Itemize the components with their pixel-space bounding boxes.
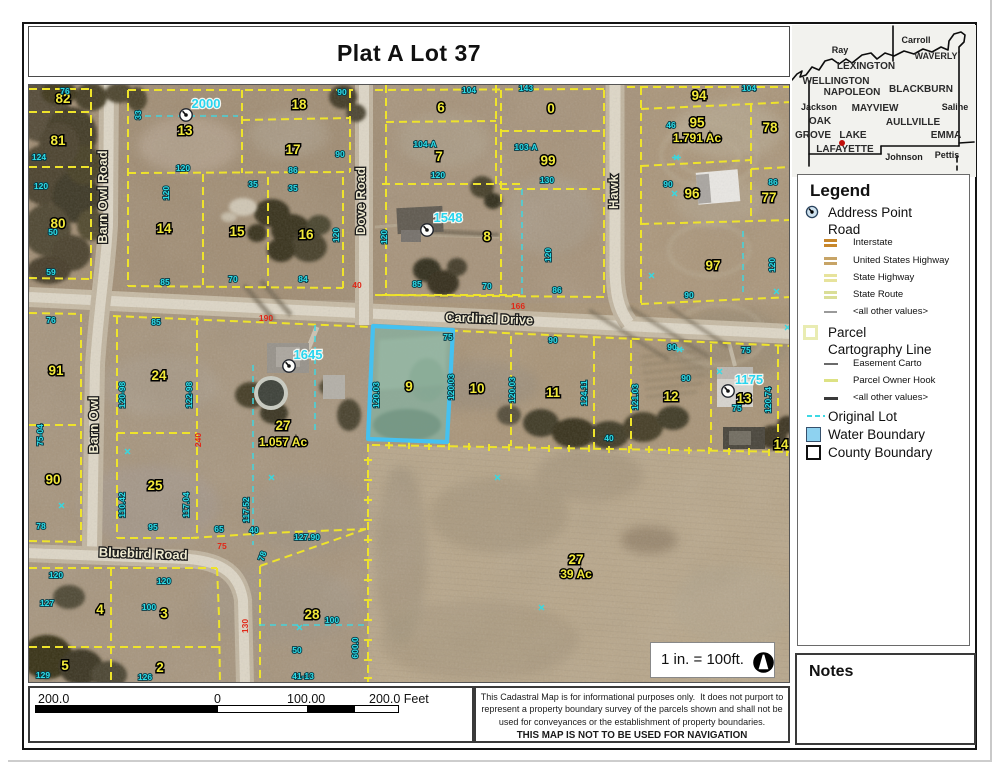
svg-text:40: 40 bbox=[352, 280, 362, 290]
svg-text:Saline: Saline bbox=[942, 102, 969, 112]
svg-text:127: 127 bbox=[40, 598, 54, 608]
svg-text:70: 70 bbox=[482, 281, 492, 291]
svg-text:95: 95 bbox=[689, 115, 705, 130]
svg-text:129: 129 bbox=[36, 670, 50, 680]
svg-text:90: 90 bbox=[335, 149, 345, 159]
svg-text:99: 99 bbox=[540, 153, 555, 168]
svg-text:120: 120 bbox=[379, 230, 389, 244]
svg-text:190: 190 bbox=[259, 313, 273, 323]
svg-text:40: 40 bbox=[249, 525, 259, 535]
svg-text:127.90: 127.90 bbox=[294, 532, 320, 542]
svg-text:76: 76 bbox=[46, 315, 56, 325]
svg-text:Barn Owl Road: Barn Owl Road bbox=[95, 150, 110, 243]
svg-text:1645: 1645 bbox=[294, 347, 323, 362]
svg-text:50: 50 bbox=[48, 227, 58, 237]
svg-text:16: 16 bbox=[298, 227, 314, 242]
svg-text:10: 10 bbox=[469, 381, 484, 396]
svg-text:12: 12 bbox=[663, 389, 678, 404]
svg-text:27: 27 bbox=[275, 418, 290, 433]
svg-text:130: 130 bbox=[540, 175, 554, 185]
svg-text:4: 4 bbox=[96, 602, 104, 617]
svg-text:120: 120 bbox=[49, 570, 63, 580]
svg-text:75: 75 bbox=[732, 403, 742, 413]
svg-text:Ray: Ray bbox=[832, 45, 849, 55]
svg-text:28: 28 bbox=[304, 607, 320, 622]
svg-text:90: 90 bbox=[681, 373, 691, 383]
svg-text:BLACKBURN: BLACKBURN bbox=[889, 84, 953, 95]
svg-text:100: 100 bbox=[325, 615, 339, 625]
svg-text:GROVE: GROVE bbox=[795, 130, 831, 141]
svg-text:100: 100 bbox=[142, 602, 156, 612]
svg-text:91: 91 bbox=[48, 363, 64, 378]
svg-text:LAFAYETTE: LAFAYETTE bbox=[816, 144, 874, 155]
svg-text:117.04: 117.04 bbox=[181, 492, 191, 518]
svg-text:Hawk: Hawk bbox=[606, 174, 621, 209]
svg-text:1175: 1175 bbox=[735, 372, 763, 387]
svg-text:120.03: 120.03 bbox=[446, 374, 456, 400]
svg-text:1548: 1548 bbox=[434, 210, 463, 225]
svg-text:117.52: 117.52 bbox=[241, 497, 251, 523]
svg-text:97: 97 bbox=[705, 258, 720, 273]
svg-text:35: 35 bbox=[248, 179, 258, 189]
svg-text:2: 2 bbox=[156, 660, 164, 675]
svg-text:Jackson: Jackson bbox=[801, 102, 837, 112]
svg-text:NAPOLEON: NAPOLEON bbox=[824, 87, 881, 98]
svg-text:14: 14 bbox=[156, 221, 172, 236]
svg-text:120.03: 120.03 bbox=[507, 377, 517, 403]
svg-text:WAVERLY: WAVERLY bbox=[914, 51, 957, 61]
svg-text:90: 90 bbox=[667, 342, 677, 352]
svg-text:75: 75 bbox=[443, 332, 453, 342]
svg-text:1.057 Ac: 1.057 Ac bbox=[259, 435, 308, 449]
svg-text:86: 86 bbox=[768, 177, 778, 187]
svg-text:78: 78 bbox=[36, 521, 46, 531]
svg-text:90: 90 bbox=[45, 472, 60, 487]
svg-text:77: 77 bbox=[761, 190, 776, 205]
svg-text:86: 86 bbox=[552, 285, 562, 295]
svg-text:124: 124 bbox=[32, 152, 46, 162]
svg-text:OAK: OAK bbox=[809, 116, 832, 127]
svg-text:70: 70 bbox=[228, 274, 238, 284]
svg-text:17: 17 bbox=[285, 142, 300, 157]
svg-text:95: 95 bbox=[148, 522, 158, 532]
svg-text:120: 120 bbox=[767, 258, 777, 272]
svg-text:126: 126 bbox=[138, 672, 152, 682]
svg-text:Johnson: Johnson bbox=[885, 152, 923, 162]
svg-text:121.03: 121.03 bbox=[630, 384, 640, 410]
svg-text:33: 33 bbox=[133, 110, 143, 120]
svg-text:86: 86 bbox=[288, 165, 298, 175]
svg-text:25: 25 bbox=[147, 478, 163, 493]
svg-text:WELLINGTON: WELLINGTON bbox=[802, 76, 869, 87]
svg-text:39 Ac: 39 Ac bbox=[560, 567, 592, 581]
svg-text:600.0: 600.0 bbox=[350, 637, 360, 659]
svg-text:13: 13 bbox=[177, 123, 193, 138]
svg-text:MAYVIEW: MAYVIEW bbox=[852, 103, 899, 114]
svg-text:8: 8 bbox=[483, 229, 491, 244]
svg-text:50: 50 bbox=[292, 645, 302, 655]
svg-text:240: 240 bbox=[193, 433, 203, 447]
svg-text:5: 5 bbox=[61, 658, 69, 673]
svg-text:120-98: 120-98 bbox=[117, 381, 127, 408]
svg-text:6: 6 bbox=[437, 100, 445, 115]
svg-text:143: 143 bbox=[519, 85, 533, 93]
svg-text:2000: 2000 bbox=[192, 96, 221, 111]
svg-text:90: 90 bbox=[663, 179, 673, 189]
svg-text:96: 96 bbox=[684, 186, 700, 201]
svg-text:104: 104 bbox=[742, 85, 756, 93]
svg-text:104: 104 bbox=[462, 85, 476, 95]
svg-text:Carroll: Carroll bbox=[901, 35, 930, 45]
svg-text:0: 0 bbox=[547, 101, 555, 116]
svg-text:24: 24 bbox=[151, 368, 167, 383]
svg-text:120: 120 bbox=[543, 248, 553, 262]
svg-text:120: 120 bbox=[331, 228, 341, 242]
svg-text:75: 75 bbox=[217, 541, 227, 551]
svg-text:110.42: 110.42 bbox=[117, 492, 127, 518]
svg-text:120: 120 bbox=[431, 170, 445, 180]
svg-text:104-A: 104-A bbox=[413, 139, 436, 149]
svg-text:90: 90 bbox=[337, 87, 347, 97]
svg-text:166: 166 bbox=[511, 301, 525, 311]
svg-text:35: 35 bbox=[288, 183, 298, 193]
svg-text:11: 11 bbox=[546, 385, 561, 400]
svg-text:120: 120 bbox=[161, 186, 171, 200]
svg-text:EMMA: EMMA bbox=[931, 130, 962, 141]
svg-text:Dove Road: Dove Road bbox=[353, 167, 368, 235]
svg-text:120: 120 bbox=[157, 576, 171, 586]
svg-text:7: 7 bbox=[435, 149, 443, 164]
svg-text:78: 78 bbox=[762, 120, 778, 135]
svg-text:15: 15 bbox=[229, 224, 245, 239]
svg-text:40: 40 bbox=[604, 433, 614, 443]
svg-text:85: 85 bbox=[412, 279, 422, 289]
svg-text:27: 27 bbox=[568, 552, 583, 567]
svg-text:94: 94 bbox=[691, 88, 707, 103]
svg-text:122-98: 122-98 bbox=[184, 381, 194, 408]
svg-text:Barn Owl: Barn Owl bbox=[86, 396, 101, 453]
svg-text:18: 18 bbox=[291, 97, 307, 112]
svg-text:AULLVILLE: AULLVILLE bbox=[886, 117, 941, 128]
svg-text:1.791 Ac: 1.791 Ac bbox=[673, 131, 722, 145]
svg-text:75-04: 75-04 bbox=[35, 424, 45, 446]
svg-text:41-13: 41-13 bbox=[292, 671, 314, 681]
svg-text:120.03: 120.03 bbox=[371, 382, 381, 408]
svg-text:81: 81 bbox=[50, 133, 66, 148]
svg-text:65: 65 bbox=[214, 524, 224, 534]
svg-text:120: 120 bbox=[176, 163, 190, 173]
svg-text:59: 59 bbox=[46, 267, 56, 277]
svg-text:46: 46 bbox=[666, 120, 676, 130]
svg-text:84: 84 bbox=[298, 274, 308, 284]
svg-text:85: 85 bbox=[160, 277, 170, 287]
svg-text:3: 3 bbox=[160, 606, 168, 621]
svg-text:LEXINGTON: LEXINGTON bbox=[837, 61, 895, 72]
svg-text:14: 14 bbox=[773, 437, 789, 452]
svg-text:9: 9 bbox=[405, 379, 413, 394]
svg-text:90: 90 bbox=[548, 335, 558, 345]
svg-text:90: 90 bbox=[684, 290, 694, 300]
svg-text:LAKE: LAKE bbox=[839, 130, 867, 141]
svg-text:124.11: 124.11 bbox=[579, 380, 589, 406]
svg-text:Pettis: Pettis bbox=[935, 150, 960, 160]
svg-text:120.74: 120.74 bbox=[763, 387, 773, 413]
svg-text:Cardinal Drive: Cardinal Drive bbox=[445, 309, 534, 327]
svg-text:85: 85 bbox=[151, 317, 161, 327]
svg-text:76: 76 bbox=[60, 86, 70, 96]
svg-text:75: 75 bbox=[741, 345, 751, 355]
svg-text:Bluebird Road: Bluebird Road bbox=[99, 544, 188, 562]
svg-text:130: 130 bbox=[240, 619, 250, 633]
svg-text:103-A: 103-A bbox=[514, 142, 537, 152]
svg-text:120: 120 bbox=[34, 181, 48, 191]
